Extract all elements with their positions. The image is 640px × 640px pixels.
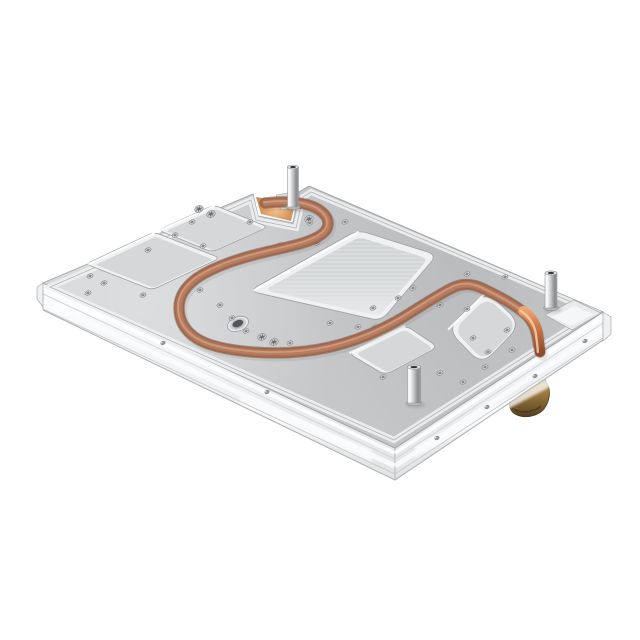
cold-plate-product-photo [0, 0, 640, 640]
rail-end-cap [603, 312, 611, 341]
product-photo-svg [0, 0, 640, 640]
rail-end-cap [37, 283, 43, 307]
